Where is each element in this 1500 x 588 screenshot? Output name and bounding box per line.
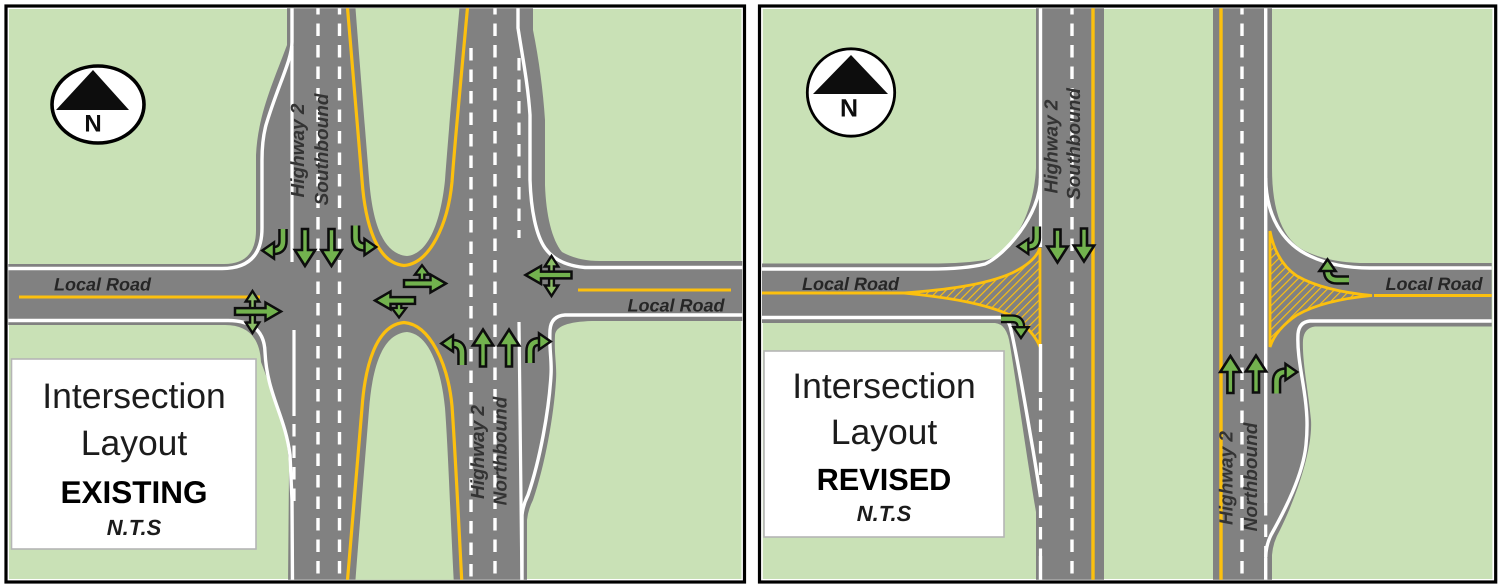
- svg-text:Southbound: Southbound: [1064, 88, 1085, 200]
- svg-text:REVISED: REVISED: [817, 462, 952, 497]
- svg-text:Highway 2: Highway 2: [288, 103, 309, 197]
- svg-text:Highway 2: Highway 2: [1042, 99, 1063, 193]
- svg-text:Local Road: Local Road: [1385, 274, 1483, 294]
- svg-text:N.T.S: N.T.S: [857, 501, 912, 526]
- svg-text:Local Road: Local Road: [627, 296, 725, 316]
- svg-text:EXISTING: EXISTING: [60, 474, 207, 510]
- svg-text:Layout: Layout: [831, 412, 938, 452]
- svg-text:Highway 2: Highway 2: [1217, 431, 1238, 525]
- svg-text:Local Road: Local Road: [802, 274, 900, 294]
- svg-text:Intersection: Intersection: [42, 376, 226, 416]
- svg-text:Layout: Layout: [81, 423, 188, 463]
- svg-text:Northbound: Northbound: [1241, 422, 1262, 531]
- svg-text:Northbound: Northbound: [491, 396, 512, 505]
- svg-text:N: N: [84, 111, 101, 138]
- svg-text:Intersection: Intersection: [792, 366, 976, 406]
- svg-text:N.T.S: N.T.S: [107, 515, 162, 540]
- svg-text:Highway 2: Highway 2: [468, 405, 489, 499]
- svg-text:Local Road: Local Road: [54, 275, 152, 295]
- svg-text:Southbound: Southbound: [312, 93, 333, 205]
- svg-text:N: N: [840, 95, 858, 123]
